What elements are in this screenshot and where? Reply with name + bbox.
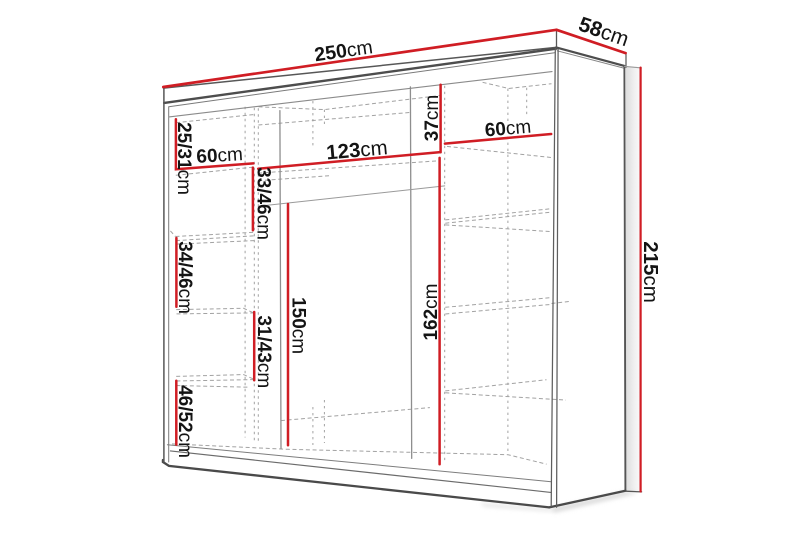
svg-text:46/52cm: 46/52cm <box>174 385 195 458</box>
svg-text:34/46cm: 34/46cm <box>174 241 195 314</box>
svg-text:60cm: 60cm <box>196 144 244 168</box>
svg-text:215cm: 215cm <box>639 241 662 303</box>
svg-text:31/43cm: 31/43cm <box>253 315 274 388</box>
svg-text:123cm: 123cm <box>325 136 388 164</box>
svg-text:33/46cm: 33/46cm <box>252 167 273 240</box>
svg-text:37cm: 37cm <box>422 95 443 141</box>
svg-text:60cm: 60cm <box>484 117 532 142</box>
svg-text:162cm: 162cm <box>421 283 442 340</box>
svg-text:150cm: 150cm <box>288 297 309 354</box>
svg-text:250cm: 250cm <box>313 36 374 66</box>
svg-text:25/31cm: 25/31cm <box>173 122 194 195</box>
